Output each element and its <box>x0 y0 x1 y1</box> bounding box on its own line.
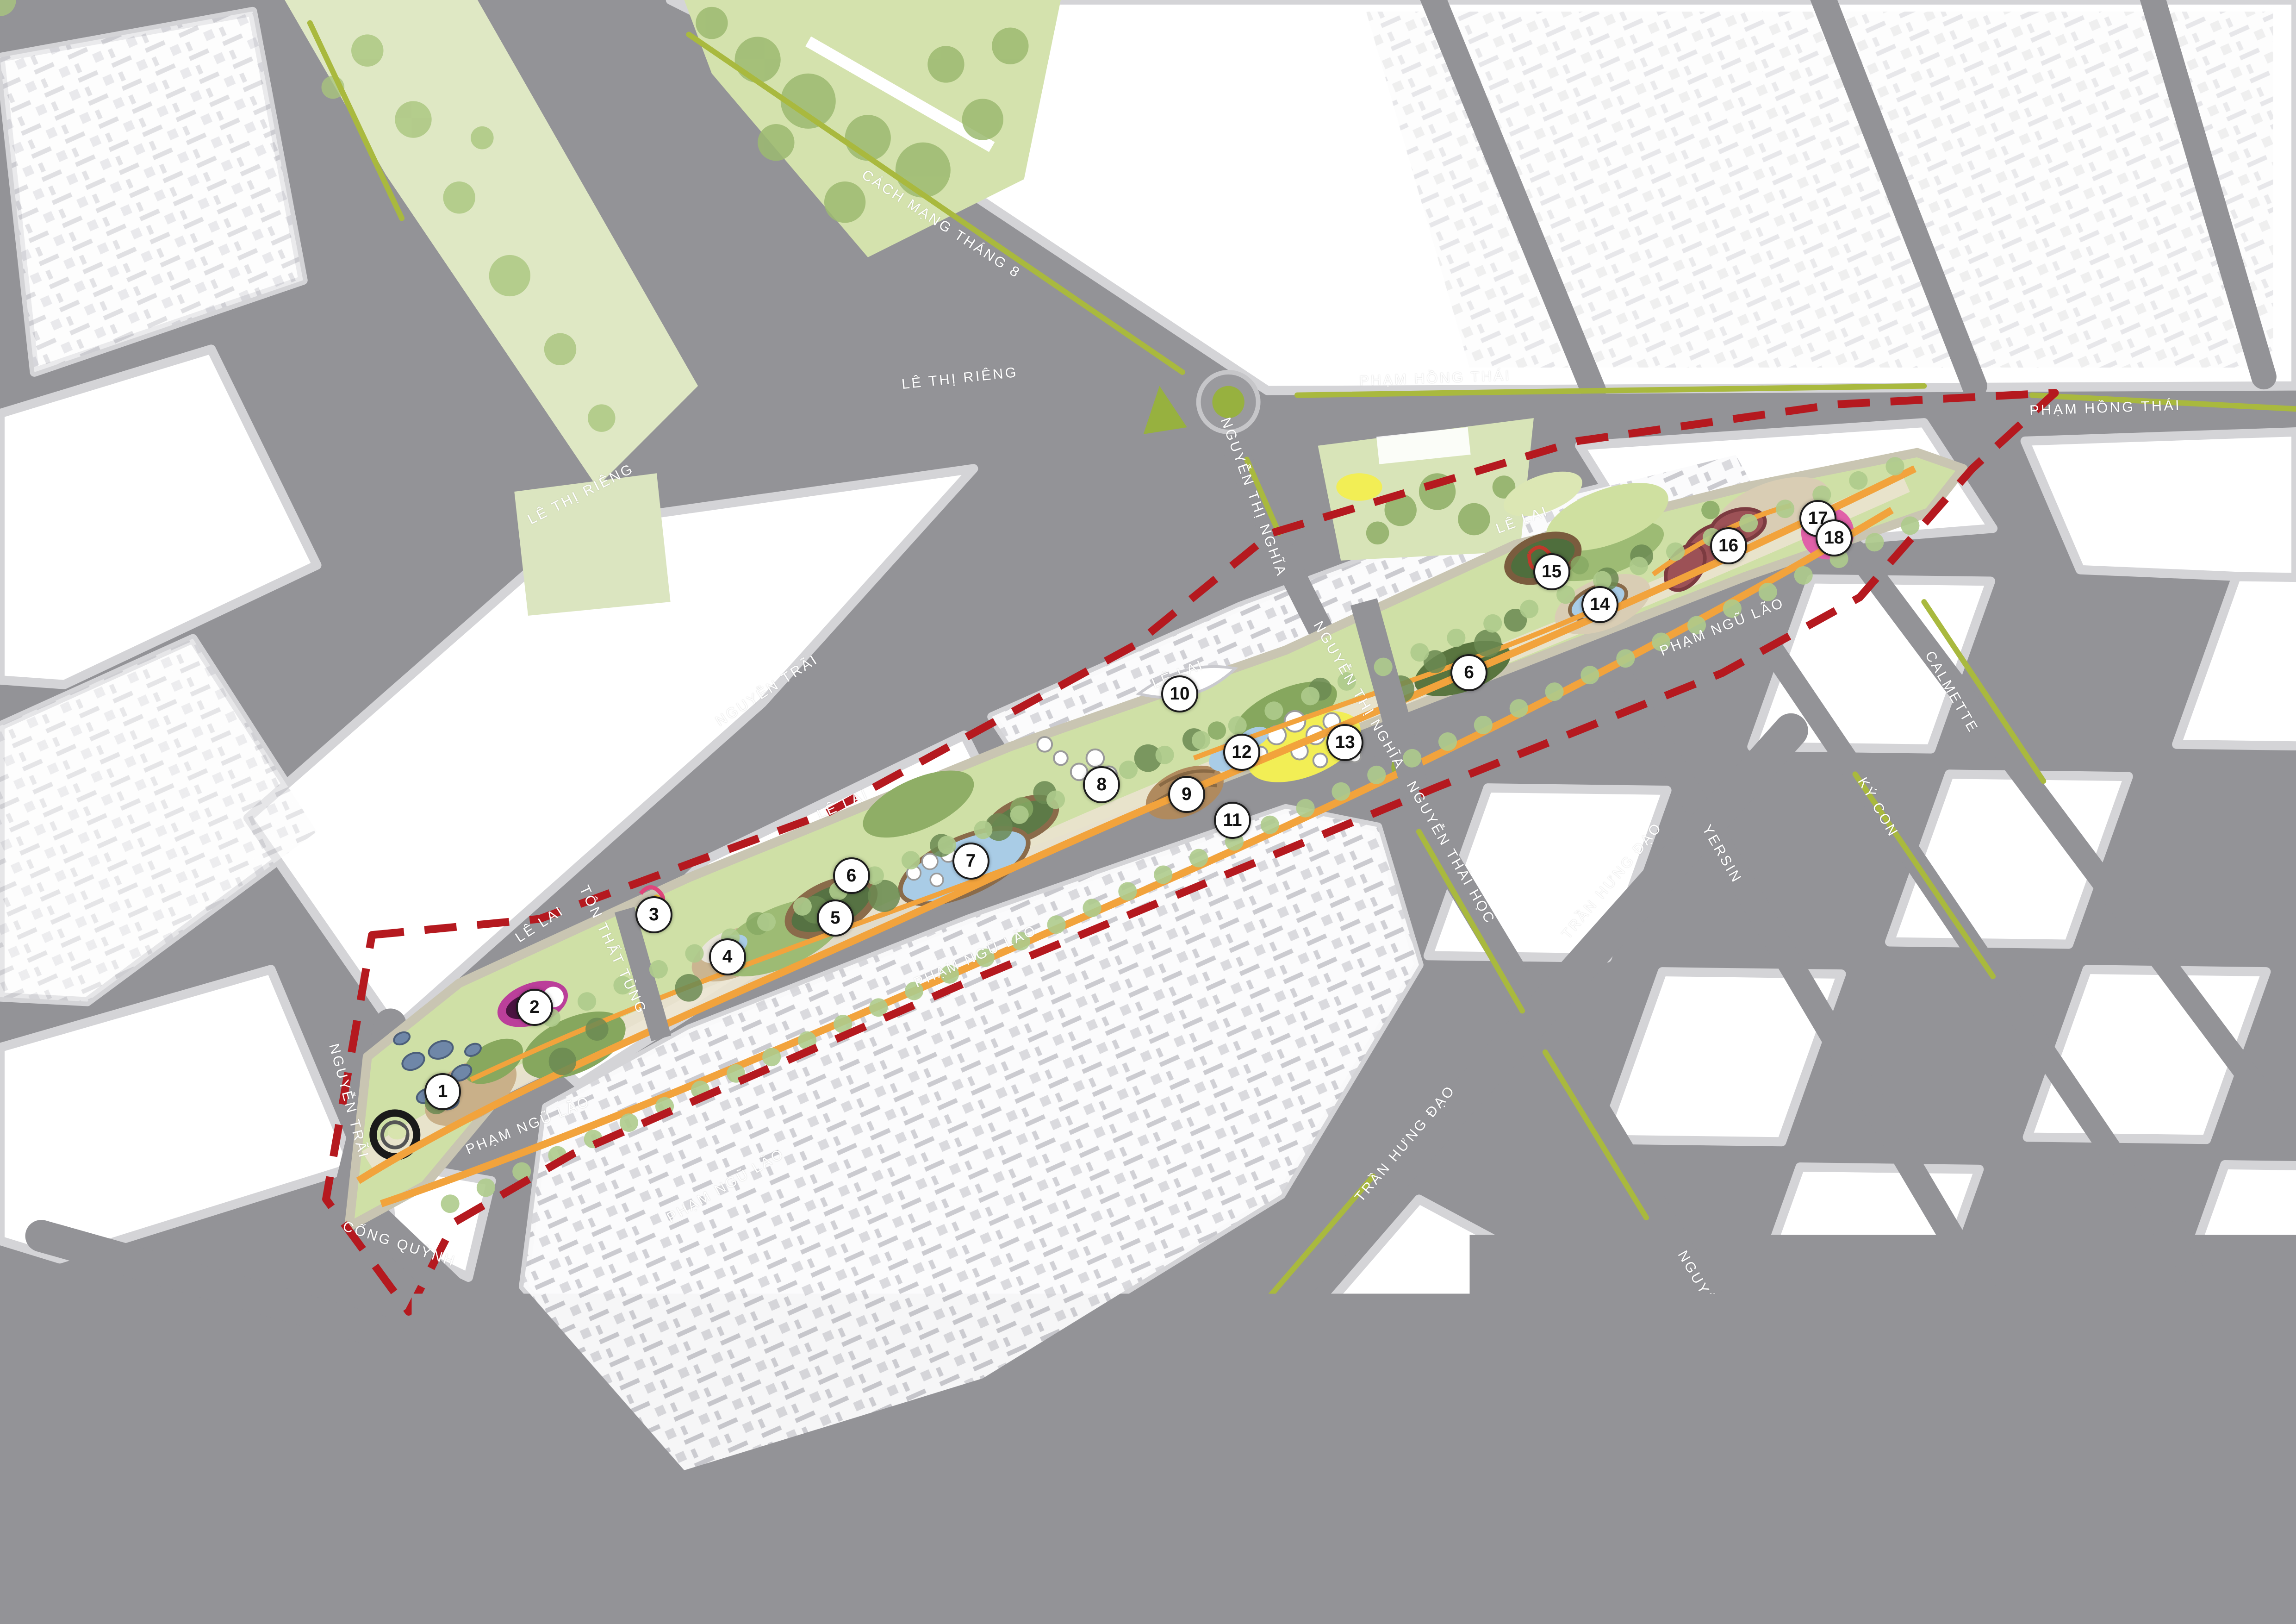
street-label: NGUYỄN THỊ NGHĨA <box>1217 415 1290 579</box>
street-label: CỐNG QUỲNH <box>341 1218 458 1270</box>
street-label: NGUYỄN THÁI HỌC <box>1674 1248 1770 1397</box>
street-label: TRẦN HƯNG ĐẠO <box>1558 818 1666 942</box>
site-marker-11: 11 <box>1214 802 1251 839</box>
street-label: LÊ THỊ RIÊNG <box>525 460 637 528</box>
street-label: CALMETTE <box>1922 648 1982 736</box>
site-marker-9: 9 <box>1168 776 1205 813</box>
street-label: LÊ THỊ RIÊNG <box>901 364 1019 393</box>
street-label: PHẠM NGŨ LÃO <box>463 1093 593 1158</box>
street-label: TRẦN HƯNG ĐẠO <box>1351 1082 1459 1206</box>
street-label: CÁCH MẠNG THÁNG 8 <box>859 166 1024 281</box>
site-marker-1: 1 <box>424 1073 461 1110</box>
street-label: PHẠM NGŨ LÃO <box>1657 594 1787 660</box>
street-label: LÊ LAI <box>814 785 871 823</box>
street-label: KÝ CON <box>1854 774 1902 840</box>
street-label: YERSIN <box>1699 822 1745 887</box>
site-marker-4: 4 <box>709 938 746 975</box>
site-marker-3: 3 <box>635 896 672 933</box>
site-marker-13: 13 <box>1326 724 1363 761</box>
street-label: LÊ LAI <box>512 902 567 946</box>
street-label: PHẠM NGŨ LÃO <box>912 922 1040 992</box>
street-label: NGUYỄN TRÃI <box>325 1042 372 1161</box>
label-overlay: CÁCH MẠNG THÁNG 8LÊ THỊ RIÊNGPHẠM HỒNG T… <box>0 0 2296 1624</box>
site-marker-10: 10 <box>1161 675 1198 712</box>
street-label: NGUYỄN TRÃI <box>712 651 821 730</box>
street-label: PHẠM HỒNG THÁI <box>1359 368 1511 389</box>
site-marker-14: 14 <box>1581 586 1618 623</box>
site-marker-2: 2 <box>516 989 553 1026</box>
site-marker-12: 12 <box>1223 734 1260 771</box>
street-label: YERSIN <box>2011 1360 2058 1424</box>
site-marker-8: 8 <box>1083 766 1120 803</box>
site-marker-18: 18 <box>1816 519 1853 556</box>
street-label: PHẠM HỒNG THÁI <box>2029 397 2182 418</box>
site-marker-6: 6 <box>1450 654 1487 691</box>
site-marker-7: 7 <box>952 843 989 880</box>
site-marker-15: 15 <box>1533 553 1570 590</box>
street-label: NGUYỄN THÁI HỌC <box>1403 778 1499 927</box>
street-label: PHẠM NGŨ LÃO <box>664 1145 787 1226</box>
site-marker-16: 16 <box>1710 527 1747 564</box>
street-label: LÊ LAI <box>1493 503 1550 537</box>
site-plan-map: CÁCH MẠNG THÁNG 8LÊ THỊ RIÊNGPHẠM HỒNG T… <box>0 0 2296 1624</box>
site-marker-5: 5 <box>817 899 854 937</box>
site-marker-6: 6 <box>833 857 870 894</box>
